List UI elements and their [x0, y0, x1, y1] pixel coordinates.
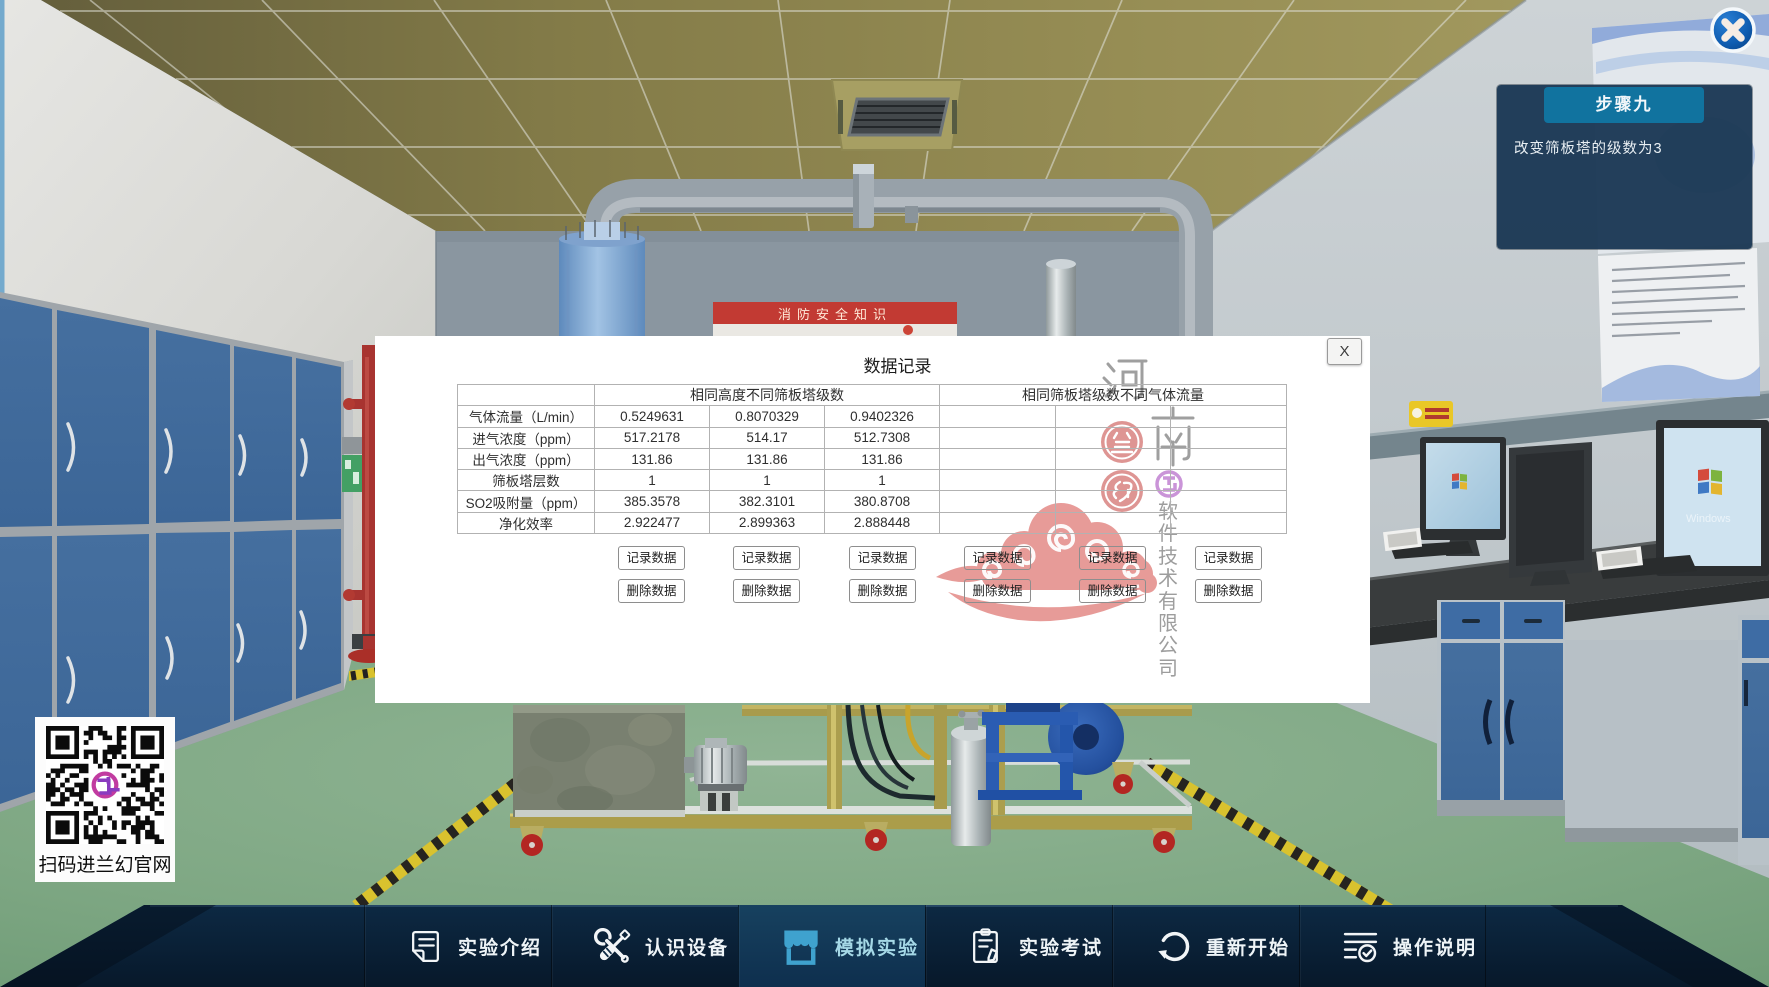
svg-text:消防安全知识: 消防安全知识 [778, 307, 892, 322]
svg-text:Windows: Windows [1686, 513, 1731, 525]
